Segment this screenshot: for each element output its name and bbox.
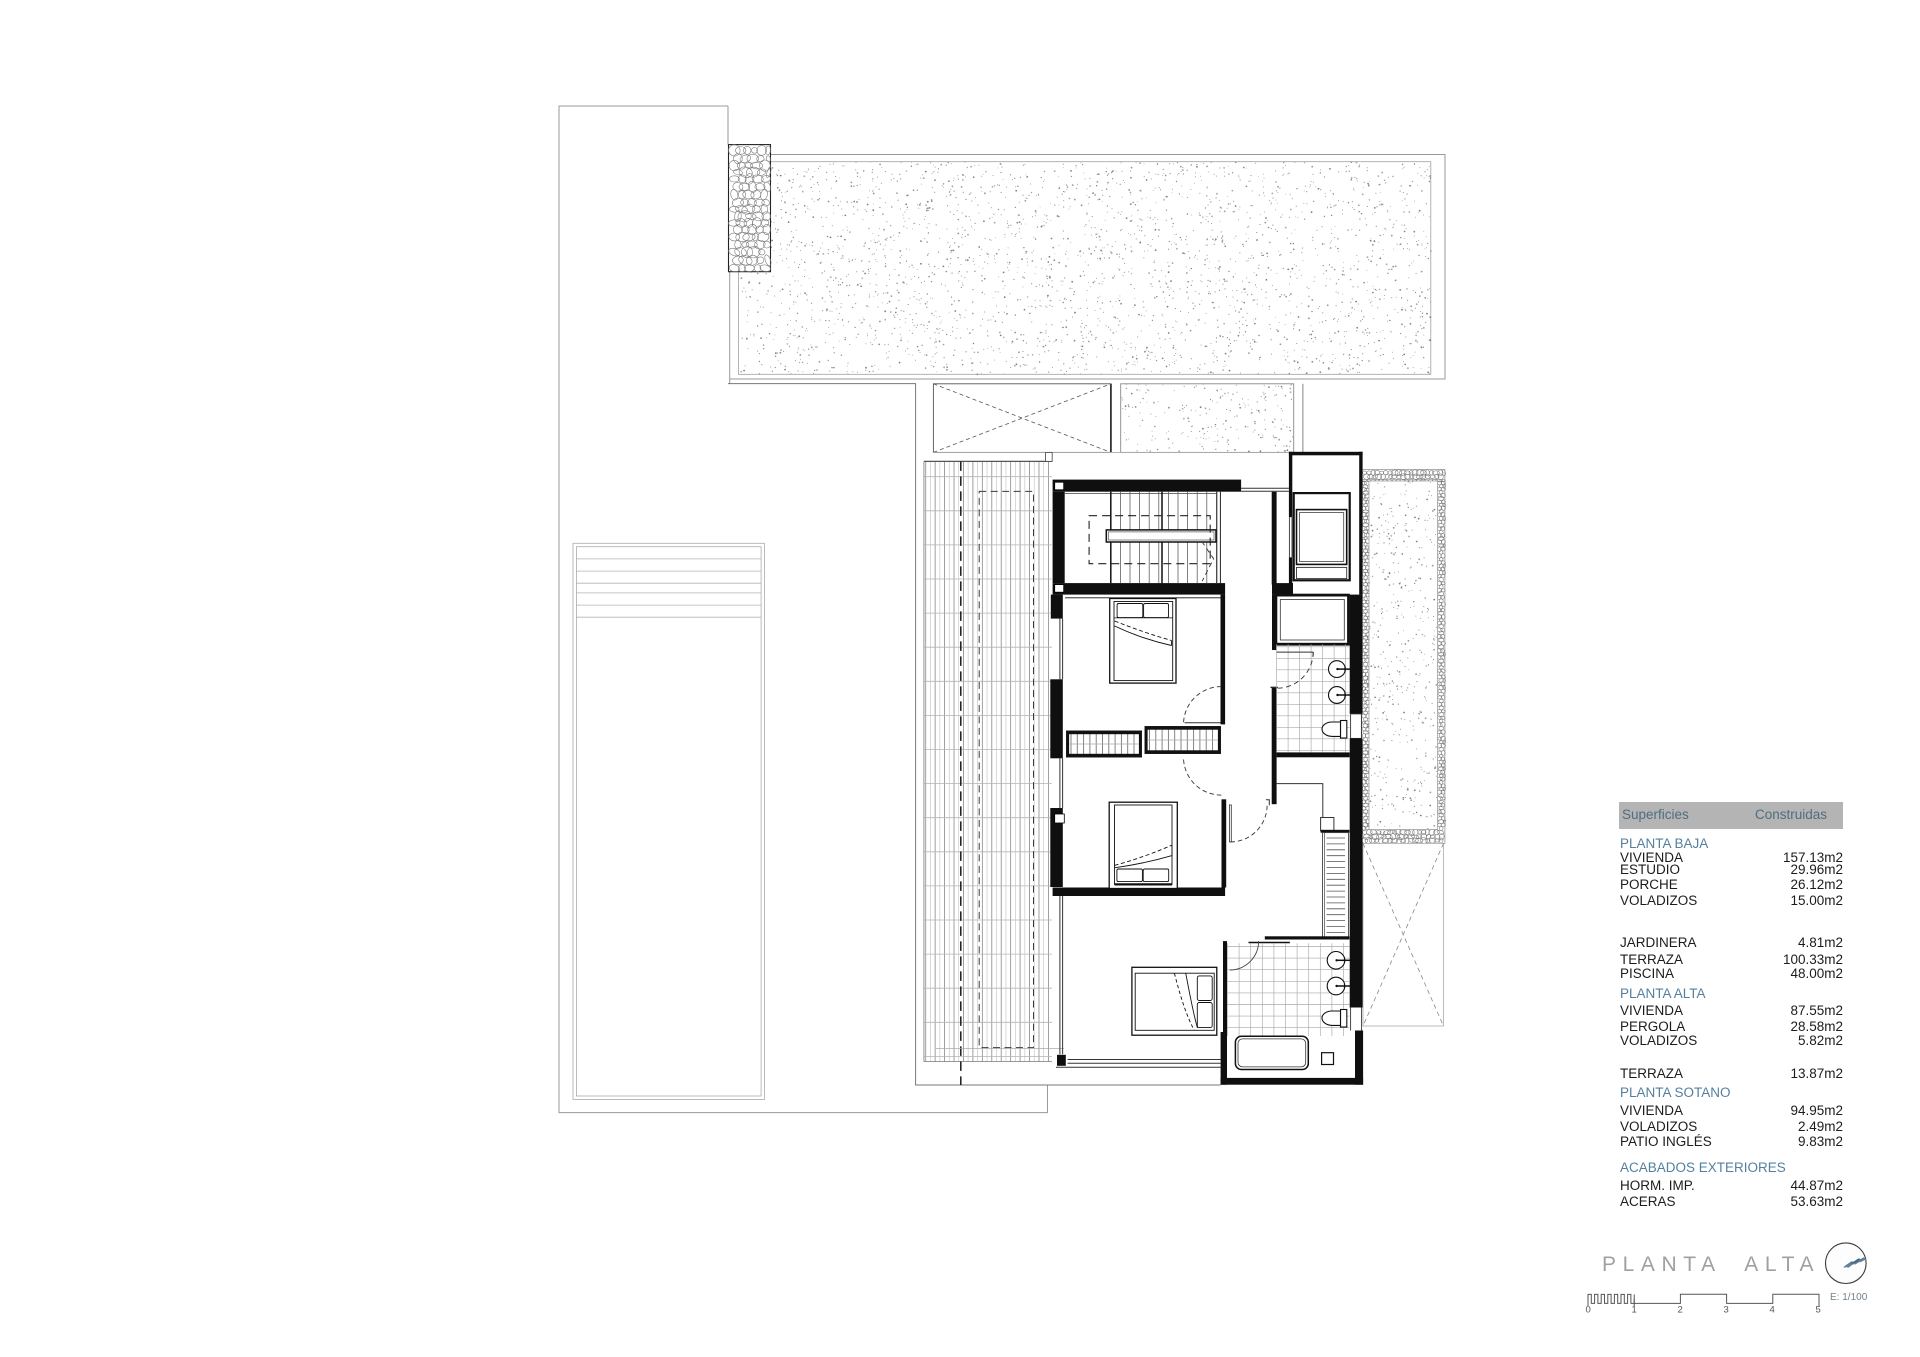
svg-text:2: 2 — [1678, 1305, 1683, 1316]
svg-text:5: 5 — [1816, 1305, 1821, 1316]
svg-text:4: 4 — [1770, 1305, 1775, 1316]
svg-text:1: 1 — [1632, 1305, 1637, 1316]
svg-text:0: 0 — [1586, 1305, 1591, 1316]
svg-text:3: 3 — [1724, 1305, 1729, 1316]
